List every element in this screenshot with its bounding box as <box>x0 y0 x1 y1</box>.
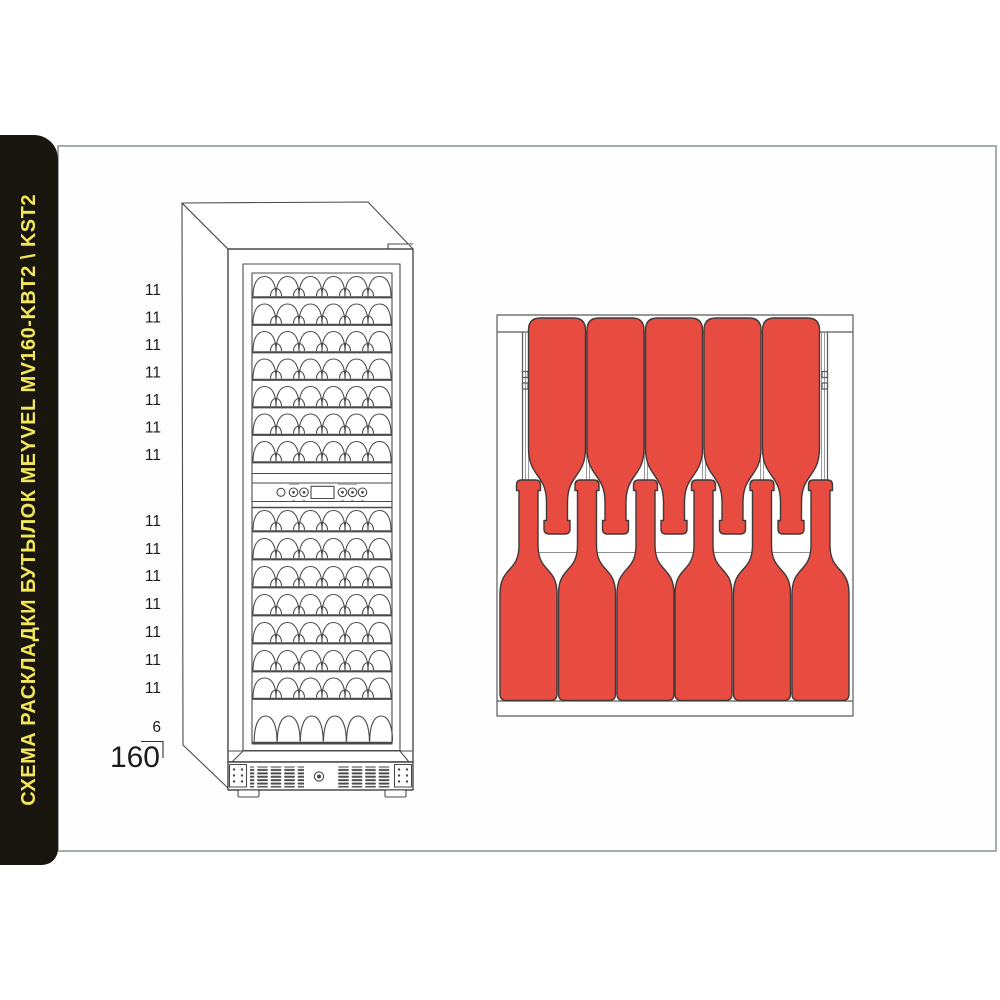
layout-drawing: 11 11 11 11 11 11 11 11 11 11 11 11 11 1… <box>0 0 1000 1000</box>
shelf-count-label: 11 <box>145 680 161 697</box>
foot-right <box>385 790 406 797</box>
shelf-count-label: 11 <box>145 282 161 299</box>
shelf-count-label: 11 <box>145 365 161 382</box>
banner-title: СХЕМА РАСКЛАДКИ БУТЫЛОК MEYVEL MV160-KBT… <box>18 194 41 806</box>
shelf-count-label: 11 <box>145 568 161 585</box>
shelf-count-label: 11 <box>145 310 161 327</box>
page: СХЕМА РАСКЛАДКИ БУТЫЛОК MEYVEL MV160-KBT… <box>0 0 1000 1000</box>
wine-cabinet-drawing <box>182 202 413 797</box>
side-banner: СХЕМА РАСКЛАДКИ БУТЫЛОК MEYVEL MV160-KBT… <box>0 135 58 865</box>
foot-left <box>238 790 259 797</box>
vent-grille-left <box>250 767 304 788</box>
shelf-count-label: 11 <box>145 624 161 641</box>
floor-count-label: 6 <box>152 719 161 736</box>
shelf-count-label: 11 <box>145 337 161 354</box>
shelf-count-label: 11 <box>145 541 161 558</box>
shelf-rack-diagram <box>497 315 853 716</box>
shelf-count-label: 11 <box>145 596 161 613</box>
vent-grille-right <box>338 767 392 788</box>
shelf-count-label: 11 <box>145 392 161 409</box>
shelf-count-labels: 11 11 11 11 11 11 11 11 11 11 11 11 11 1… <box>110 282 163 774</box>
shelf-count-label: 11 <box>145 420 161 437</box>
shelf-count-label: 11 <box>145 652 161 669</box>
shelf-count-label: 11 <box>145 513 161 530</box>
cabinet-front-face <box>228 249 413 762</box>
shelf-count-label: 11 <box>145 447 161 464</box>
total-capacity-label: 160 <box>110 741 160 774</box>
cabinet-side-face <box>182 203 228 788</box>
